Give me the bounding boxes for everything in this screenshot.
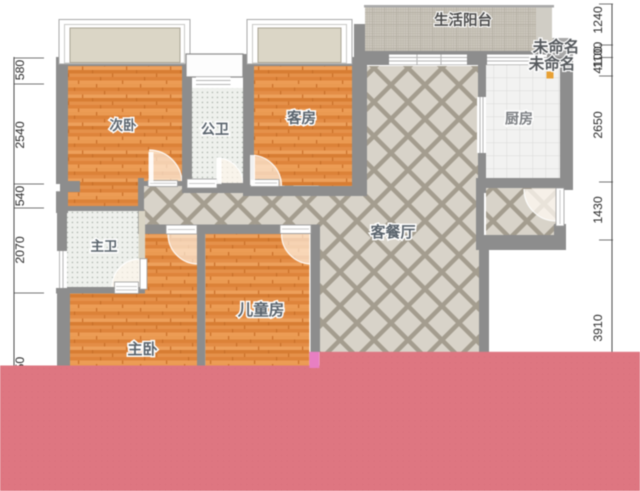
svg-text:公卫: 公卫 — [201, 121, 229, 137]
svg-text:1430: 1430 — [591, 196, 605, 224]
svg-text:客餐厅: 客餐厅 — [369, 223, 415, 241]
svg-text:儿童房: 儿童房 — [237, 300, 285, 319]
svg-text:4100: 4100 — [591, 46, 605, 74]
svg-text:主卧: 主卧 — [127, 340, 157, 358]
svg-text:540: 540 — [13, 186, 27, 207]
svg-text:2540: 2540 — [13, 121, 27, 149]
svg-text:生活阳台: 生活阳台 — [434, 11, 492, 29]
svg-text:客房: 客房 — [286, 109, 316, 127]
svg-text:次卧: 次卧 — [110, 117, 137, 133]
svg-text:2650: 2650 — [591, 111, 605, 139]
svg-text:未命名: 未命名 — [528, 54, 576, 73]
svg-text:厨房: 厨房 — [505, 111, 533, 127]
svg-text:580: 580 — [13, 60, 27, 81]
svg-text:1240: 1240 — [591, 6, 605, 34]
svg-text:2070: 2070 — [13, 236, 27, 264]
svg-text:3910: 3910 — [591, 314, 605, 342]
svg-text:未命名: 未命名 — [532, 37, 580, 56]
svg-text:主卫: 主卫 — [91, 238, 118, 254]
